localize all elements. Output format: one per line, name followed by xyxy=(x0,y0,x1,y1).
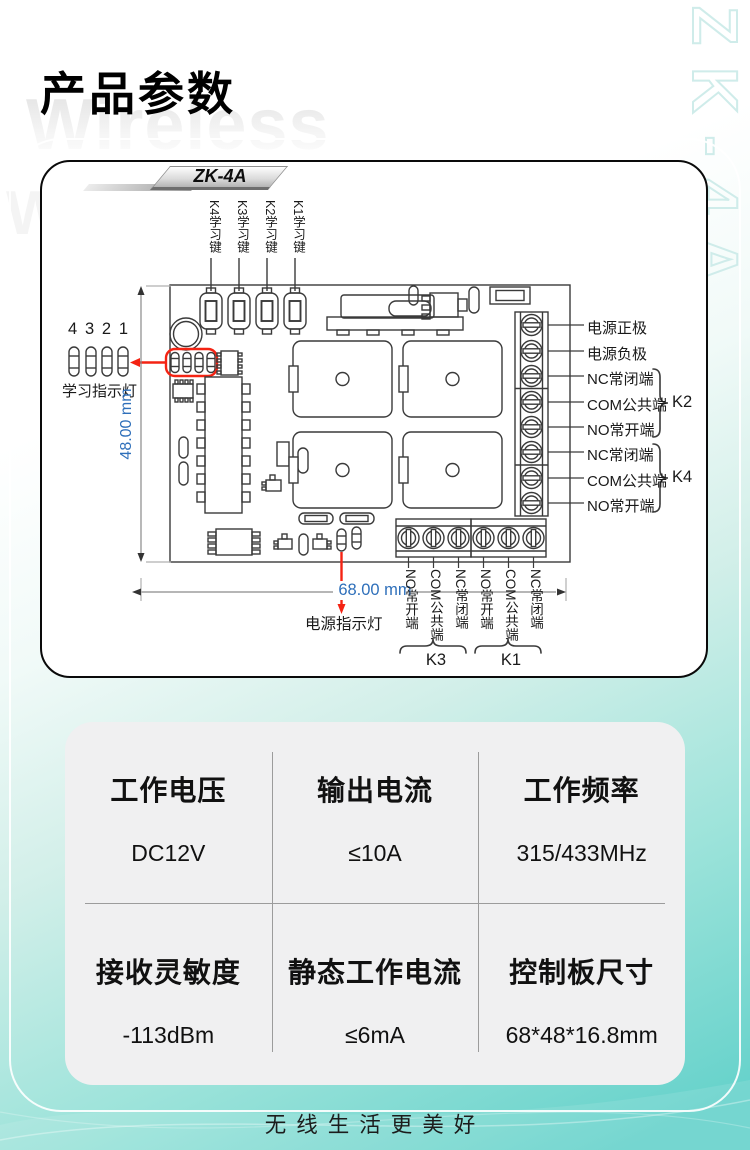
right-group-braces xyxy=(653,369,668,512)
key-label-k3: K3学习键 xyxy=(230,194,248,258)
table-divider-horizontal xyxy=(85,903,665,904)
bottom-terminal-label-no-k1: NO常开端 xyxy=(475,569,492,651)
spec-cell-output-current: 输出电流 ≤10A xyxy=(272,722,479,904)
terminal-label-no-k2: NO常开端 xyxy=(587,419,655,440)
spec-name: 工作电压 xyxy=(110,769,226,809)
push-button-k2 xyxy=(256,288,278,334)
power-led-caption: 电源指示灯 xyxy=(305,612,383,634)
bottom-terminal-label-com-k1: COM公共端 xyxy=(500,569,517,651)
ic-8pin xyxy=(173,380,193,402)
key-label-k4: K4学习键 xyxy=(202,194,220,258)
terminal-label-power-minus: 电源负极 xyxy=(587,343,647,364)
spec-value: -113dBm xyxy=(123,1022,215,1049)
led-digit: 4 xyxy=(68,320,77,339)
relay-4 xyxy=(399,432,502,508)
spec-cell-board-size: 控制板尺寸 68*48*16.8mm xyxy=(478,904,685,1086)
spec-value: ≤10A xyxy=(348,840,402,867)
led-digit: 2 xyxy=(102,320,111,339)
bottom-terminal-label-no-k3: NO常开端 xyxy=(400,569,417,651)
terminal-label-no-k4: NO常开端 xyxy=(587,495,655,516)
right-leader-lines xyxy=(548,325,584,503)
terminal-label-com-k2: COM公共端 xyxy=(587,394,667,415)
product-parameters-page: Wireless Wireless ZK-4A 产品参数 ZK-4A xyxy=(0,0,750,1150)
led-digit: 3 xyxy=(85,320,94,339)
push-button-k3 xyxy=(228,288,250,334)
ic-small-top xyxy=(217,351,242,375)
bottom-terminal-block xyxy=(396,519,546,568)
relay-1 xyxy=(289,341,392,417)
height-dimension-label: 48.00 mm xyxy=(118,380,138,468)
screw-terminals-right xyxy=(521,315,542,514)
misc-bottom-components xyxy=(274,513,374,555)
spec-value: DC12V xyxy=(131,840,205,867)
terminal-label-power-plus: 电源正极 xyxy=(587,317,647,338)
page-title: 产品参数 xyxy=(40,58,236,124)
model-tag-label: ZK-4A xyxy=(170,166,270,187)
bottom-terminal-label-com-k3: COM公共端 xyxy=(425,569,442,651)
spec-cell-voltage: 工作电压 DC12V xyxy=(65,722,272,904)
spec-name: 接收灵敏度 xyxy=(96,951,241,991)
spec-value: 315/433MHz xyxy=(516,840,646,867)
table-divider-vertical-1 xyxy=(272,752,273,1052)
footer-slogan: 无线生活更美好 xyxy=(0,1108,750,1139)
right-terminal-block xyxy=(515,312,584,516)
bottom-terminal-label-nc-k1: NC常闭端 xyxy=(525,569,542,651)
ic-dip xyxy=(197,377,250,513)
key-label-k1: K1学习键 xyxy=(286,194,304,258)
spec-name: 工作频率 xyxy=(524,769,640,809)
terminal-label-nc-k4: NC常闭端 xyxy=(587,444,654,465)
spec-cell-static-current: 静态工作电流 ≤6mA xyxy=(272,904,479,1086)
push-button-k4 xyxy=(200,288,222,334)
relay-2 xyxy=(399,341,502,417)
red-arrow-left xyxy=(130,358,140,367)
push-button-k1 xyxy=(284,288,306,334)
led-digit: 1 xyxy=(119,320,128,339)
spec-value: 68*48*16.8mm xyxy=(506,1022,658,1049)
learn-led-group xyxy=(171,353,215,373)
capacitor-circle xyxy=(170,318,202,350)
learn-led-callout xyxy=(69,347,128,376)
group-label-k1: K1 xyxy=(496,651,526,670)
relay-3 xyxy=(289,432,392,508)
spec-cell-frequency: 工作频率 315/433MHz xyxy=(478,722,685,904)
bottom-terminal-label-nc-k3: NC常闭端 xyxy=(450,569,467,651)
group-label-k4: K4 xyxy=(672,468,692,487)
terminal-label-com-k4: COM公共端 xyxy=(587,470,667,491)
led-digit-row: 4 3 2 1 xyxy=(68,320,128,339)
spec-name: 输出电流 xyxy=(317,769,433,809)
spec-name: 控制板尺寸 xyxy=(509,951,654,991)
learn-buttons xyxy=(200,258,306,334)
terminal-label-nc-k2: NC常闭端 xyxy=(587,368,654,389)
key-label-k2: K2学习键 xyxy=(258,194,276,258)
spec-cell-sensitivity: 接收灵敏度 -113dBm xyxy=(65,904,272,1086)
ic-soic xyxy=(208,529,260,555)
group-label-k3: K3 xyxy=(421,651,451,670)
group-label-k2: K2 xyxy=(672,393,692,412)
rf-module xyxy=(327,295,463,335)
table-divider-vertical-2 xyxy=(478,752,479,1052)
spec-name: 静态工作电流 xyxy=(288,951,462,991)
spec-value: ≤6mA xyxy=(345,1022,405,1049)
